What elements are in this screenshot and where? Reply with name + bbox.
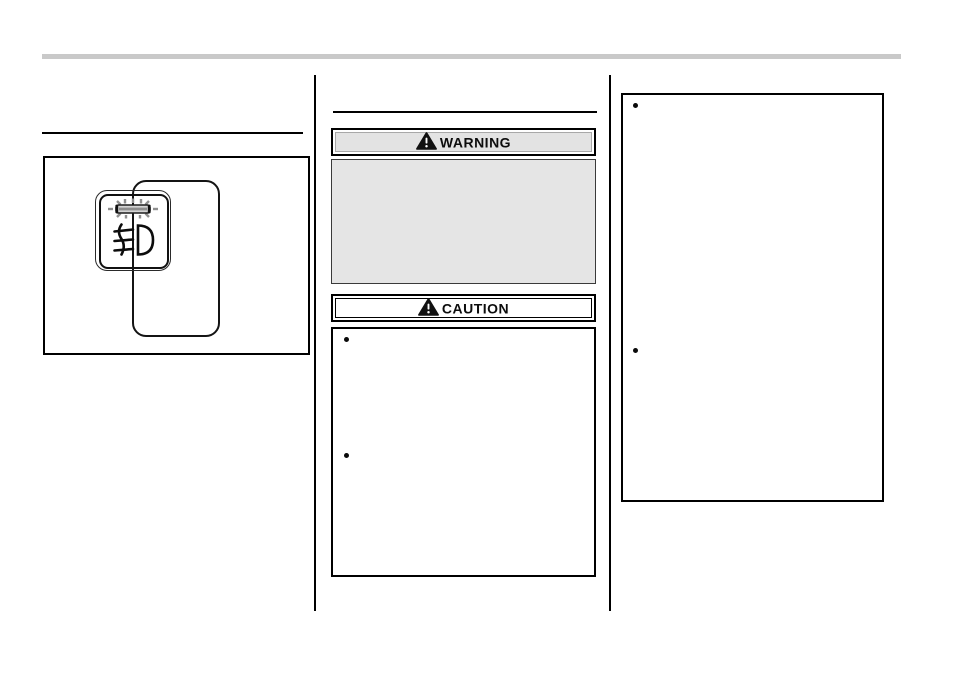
fog-light-switch-illustration <box>43 156 310 355</box>
bullet-point <box>344 453 349 458</box>
manual-page: WARNING CAUTION <box>0 0 954 675</box>
warning-triangle-icon <box>418 298 439 321</box>
warning-text-panel <box>331 159 596 284</box>
warning-banner: WARNING <box>331 128 596 156</box>
right-notes-box <box>621 93 884 502</box>
warning-banner-label: WARNING <box>440 136 511 150</box>
warning-triangle-icon <box>416 132 437 155</box>
bullet-point <box>344 337 349 342</box>
bullet-point <box>633 103 638 108</box>
indicator-lamp-icon <box>115 205 150 214</box>
switch-symbols <box>102 198 166 262</box>
caution-notes-box <box>331 327 596 577</box>
left-section-heading-rule <box>42 132 303 134</box>
bullet-point <box>633 348 638 353</box>
middle-section-heading-rule <box>333 111 597 113</box>
front-fog-light-icon <box>115 225 154 255</box>
column-divider-right <box>609 75 611 611</box>
caution-banner: CAUTION <box>331 294 596 322</box>
column-divider-left <box>314 75 316 611</box>
caution-banner-label: CAUTION <box>442 302 509 316</box>
header-rule-bar <box>42 54 901 59</box>
